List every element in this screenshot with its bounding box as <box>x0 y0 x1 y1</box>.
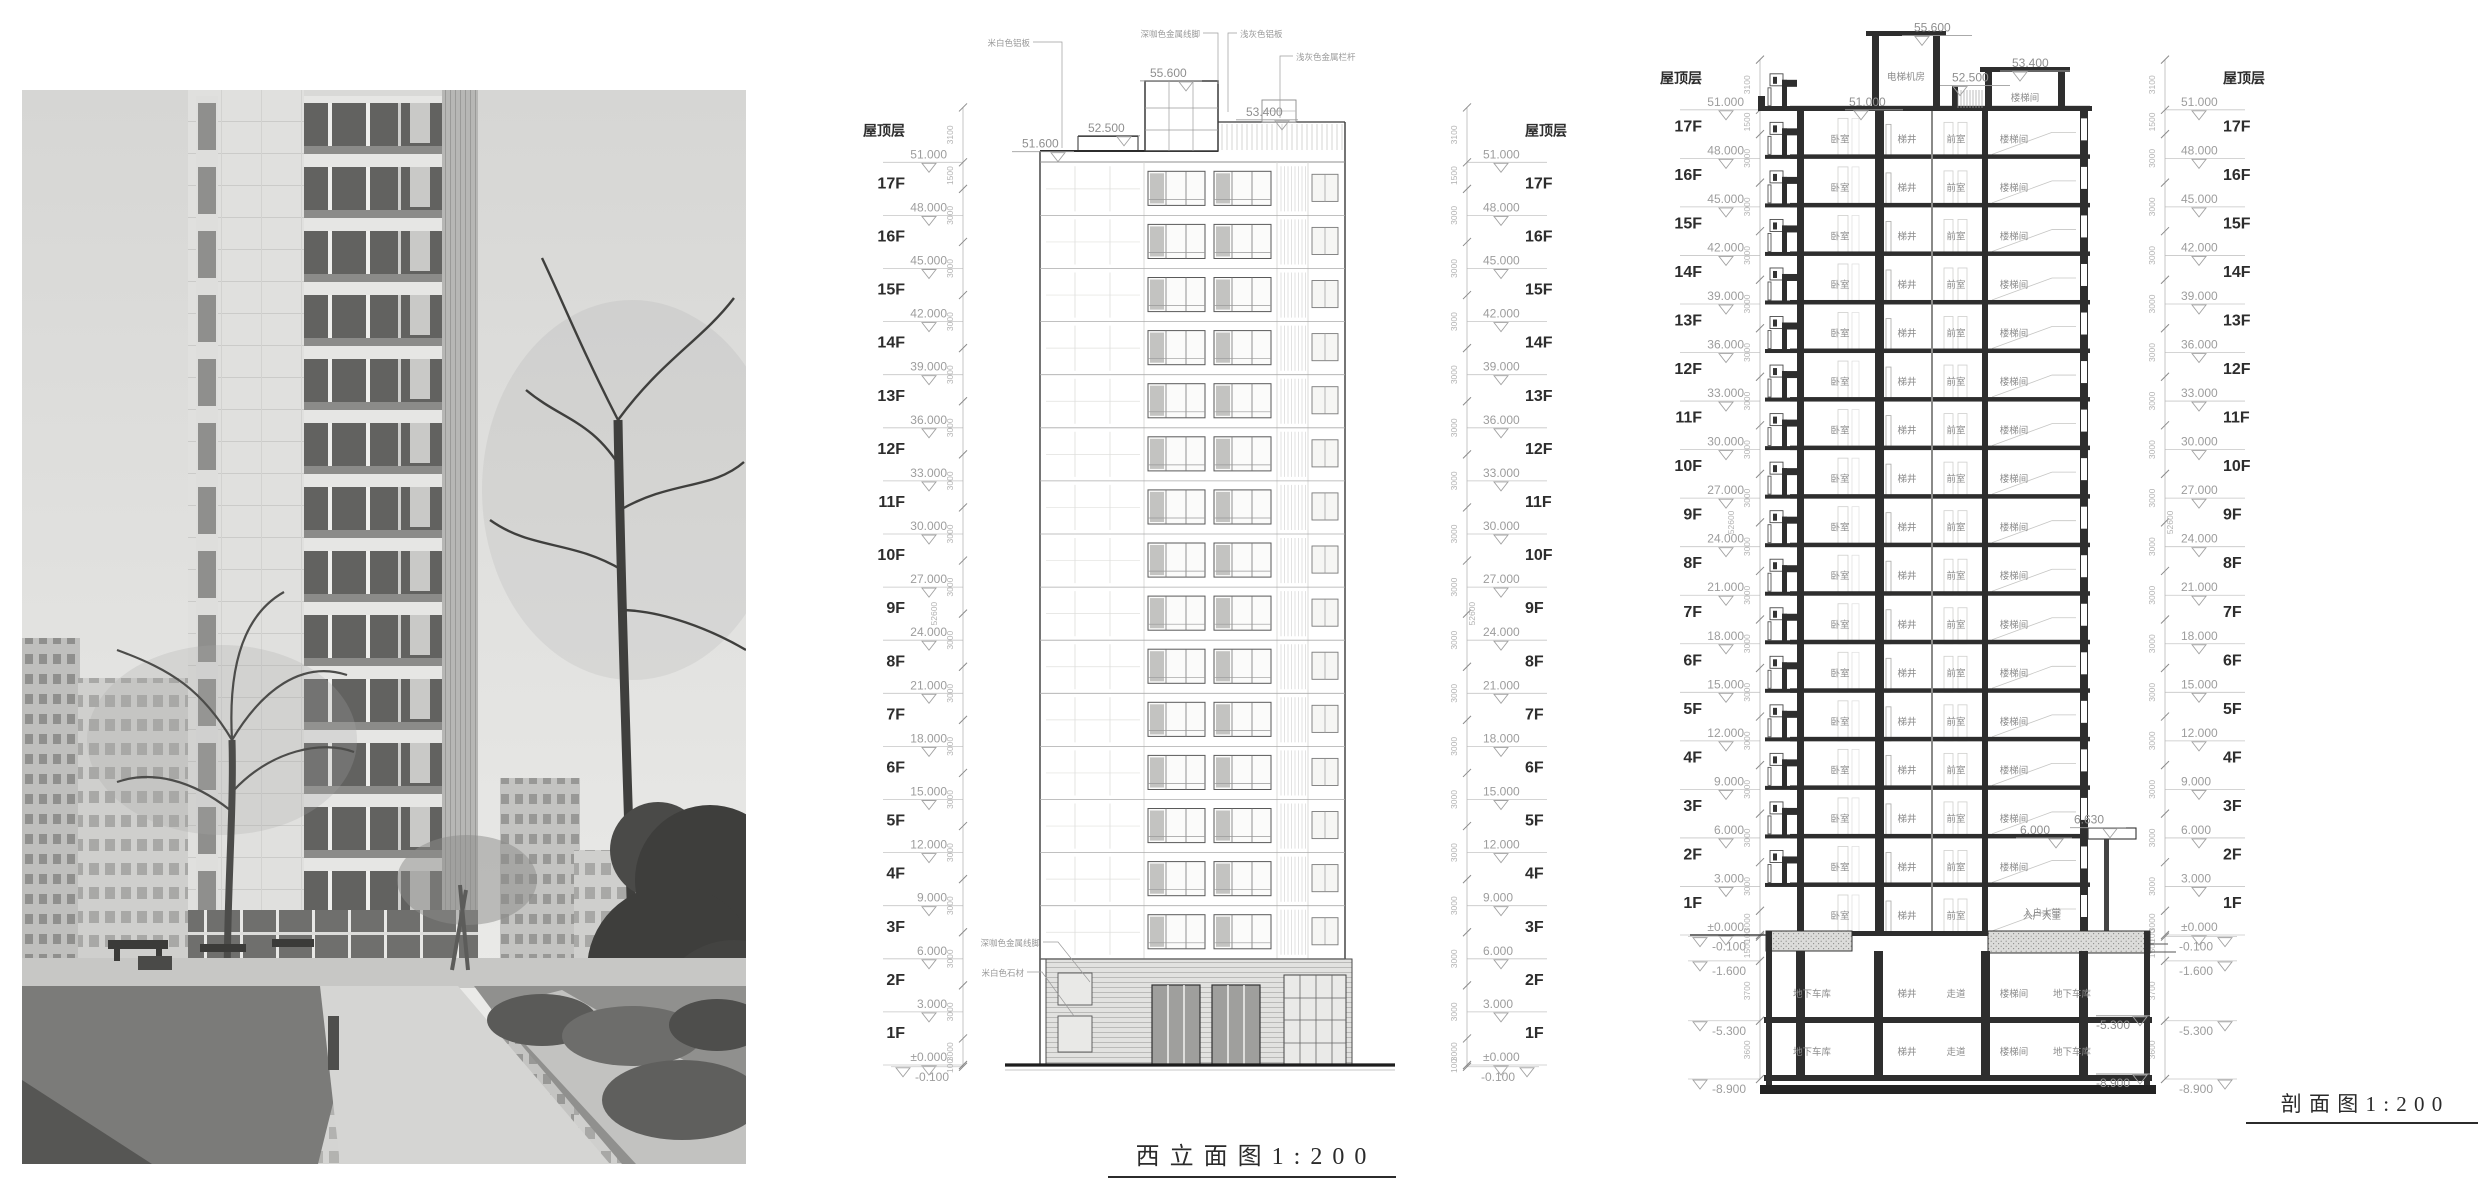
floor-name: 8F <box>1683 555 1702 572</box>
room-label: 梯井 <box>1897 328 1916 340</box>
floor-level: 30.000 <box>910 519 947 533</box>
dim-label: 3000 <box>945 206 955 225</box>
level-marker-icon <box>1494 323 1508 332</box>
floor-level: 33.000 <box>1483 466 1520 480</box>
dim-label: 3000 <box>1742 877 1752 896</box>
level-marker-icon <box>896 1068 910 1077</box>
elevation-building: 51.60052.50055.60053.400米白色铝板深咖色金属线脚浅灰色铝… <box>980 29 1395 1070</box>
room-label: 楼梯间 <box>2000 473 2029 485</box>
floor-level: 21.000 <box>1483 678 1520 692</box>
floor-name: 9F <box>886 600 905 617</box>
room-label: 楼梯间 <box>2000 182 2029 194</box>
floor-name: 12F <box>2223 361 2251 378</box>
level-marker-icon <box>2192 693 2206 702</box>
level-marker-icon <box>2192 499 2206 508</box>
below-level: -8.900 <box>2179 1082 2213 1096</box>
room-label: 梯井 <box>1897 425 1916 437</box>
dim-label: 3000 <box>1742 731 1752 750</box>
dim-label: 3000 <box>1742 828 1752 847</box>
level-marker-icon <box>2218 962 2232 971</box>
room-label: 卧室 <box>1830 861 1849 873</box>
dim-label: 3000 <box>2147 731 2157 750</box>
dim-label: 3000 <box>1449 577 1459 596</box>
level-marker-icon <box>1494 854 1508 863</box>
level-marker-icon <box>1494 747 1508 756</box>
dim-label: 100 <box>945 1059 955 1073</box>
below-level: -5.300 <box>2179 1024 2213 1038</box>
floor-name: 10F <box>1525 547 1553 564</box>
floor-name: 15F <box>2223 215 2251 232</box>
floor-level: 42.000 <box>1483 307 1520 321</box>
room-label: 地下车库 <box>1793 988 1832 1000</box>
room-label: 卧室 <box>1830 473 1849 485</box>
room-label: 卧室 <box>1830 813 1849 825</box>
floor-level: ±0.000 <box>910 1050 947 1064</box>
floor-level: 36.000 <box>1483 413 1520 427</box>
floor-name: 13F <box>1525 388 1553 405</box>
floor-name: 14F <box>877 335 905 352</box>
level-marker-icon <box>2192 354 2206 363</box>
level-marker-icon <box>1494 641 1508 650</box>
room-label: 梯井 <box>1897 230 1916 242</box>
dim-label: 3000 <box>1449 259 1459 278</box>
floor-name: 3F <box>1683 798 1702 815</box>
dim-label: 1500 <box>1449 166 1459 185</box>
level-marker-icon <box>1719 208 1733 217</box>
room-label: 前室 <box>1946 376 1965 388</box>
floor-name: 6F <box>2223 652 2242 669</box>
dim-label: 3000 <box>945 524 955 543</box>
level-marker-icon <box>2218 938 2232 947</box>
floor-level: 51.000 <box>2181 95 2218 109</box>
room-label: 卧室 <box>1830 279 1849 291</box>
floor-level: 3.000 <box>1714 871 1744 885</box>
level-marker-icon <box>1719 790 1733 799</box>
floor-level: 36.000 <box>2181 338 2218 352</box>
floor-name: 15F <box>877 282 905 299</box>
floor-name: 4F <box>1525 866 1544 883</box>
level-marker-icon <box>2049 839 2063 848</box>
level-marker-icon <box>2192 111 2206 120</box>
site-photo <box>22 90 746 1164</box>
room-label: 卧室 <box>1830 910 1849 922</box>
floor-level: 18.000 <box>910 731 947 745</box>
floor-name: 17F <box>1525 175 1553 192</box>
level-callout: 53.400 <box>2012 56 2049 70</box>
below-level: -5.300 <box>1712 1024 1746 1038</box>
floor-level: 3.000 <box>1483 997 1513 1011</box>
level-marker-icon <box>1719 354 1733 363</box>
floor-name: 17F <box>2223 118 2251 135</box>
dim-label: 3000 <box>1449 630 1459 649</box>
floor-level: 18.000 <box>2181 629 2218 643</box>
level-marker-icon <box>2192 596 2206 605</box>
floor-name: 7F <box>1683 604 1702 621</box>
floor-level: 30.000 <box>1707 435 1744 449</box>
dim-label: 3000 <box>1742 537 1752 556</box>
level-marker-icon <box>922 854 936 863</box>
room-label: 梯井 <box>1897 764 1916 776</box>
floor-name: 10F <box>2223 458 2251 475</box>
level-marker-icon <box>1719 402 1733 411</box>
floor-level: 48.000 <box>1707 143 1744 157</box>
room-label: 前室 <box>1946 182 1965 194</box>
floor-level: 21.000 <box>2181 580 2218 594</box>
dim-label: 3000 <box>2147 634 2157 653</box>
dim-label: 3000 <box>1742 391 1752 410</box>
floor-level: 27.000 <box>2181 483 2218 497</box>
floor-name: 10F <box>877 547 905 564</box>
level-marker-icon <box>2192 742 2206 751</box>
section-title: 剖 面 图 1 : 2 0 0 <box>2246 1088 2478 1124</box>
dim-label: 3100 <box>2147 75 2157 94</box>
floor-level: 27.000 <box>1707 483 1744 497</box>
dim-label: 3000 <box>945 577 955 596</box>
level-marker-icon <box>2192 790 2206 799</box>
floor-name: 14F <box>1525 335 1553 352</box>
floor-name: 7F <box>2223 604 2242 621</box>
level-marker-icon <box>2218 1080 2232 1089</box>
level-marker-icon <box>2192 159 2206 168</box>
room-label: 前室 <box>1946 813 1965 825</box>
floor-level: 39.000 <box>2181 289 2218 303</box>
level-marker-icon <box>922 801 936 810</box>
floor-name: 6F <box>886 760 905 777</box>
level-column-right: 51.000屋顶层48.00017F45.00016F42.00015F39.0… <box>1449 103 1567 1083</box>
floor-name: 12F <box>1525 441 1553 458</box>
floor-level: 12.000 <box>2181 726 2218 740</box>
room-label: 梯井 <box>1897 861 1916 873</box>
level-marker-icon <box>1719 596 1733 605</box>
level-callout: 55.600 <box>1150 66 1187 80</box>
level-marker-icon <box>1494 376 1508 385</box>
level-marker-icon <box>922 694 936 703</box>
floor-name: 12F <box>877 441 905 458</box>
dim-label: 3000 <box>945 630 955 649</box>
level-marker-icon <box>1693 962 1707 971</box>
level-marker-icon <box>1494 429 1508 438</box>
elevation-title: 西 立 面 图 1 : 2 0 0 <box>1108 1136 1396 1178</box>
floor-level: 15.000 <box>2181 677 2218 691</box>
floor-level: 45.000 <box>910 254 947 268</box>
floor-name: 5F <box>2223 701 2242 718</box>
dim-label: 3000 <box>2147 828 2157 847</box>
room-label: 楼梯间 <box>2000 764 2029 776</box>
room-label: 前室 <box>1946 473 1965 485</box>
room-label: 楼梯间 <box>2000 619 2029 631</box>
floor-level: 27.000 <box>1483 572 1520 586</box>
floor-level: ±0.000 <box>1707 920 1744 934</box>
level-callout: 51.000 <box>1849 95 1886 109</box>
room-label: 卧室 <box>1830 425 1849 437</box>
dim-label: 3000 <box>1742 585 1752 604</box>
floor-name: 11F <box>1675 410 1702 427</box>
floor-name: 2F <box>2223 846 2242 863</box>
room-label: 前室 <box>1946 861 1965 873</box>
floor-name: 9F <box>1525 600 1544 617</box>
floor-name: 8F <box>2223 555 2242 572</box>
floor-level: 45.000 <box>2181 192 2218 206</box>
floor-level: 51.000 <box>910 147 947 161</box>
dim-label: 3000 <box>2147 537 2157 556</box>
floor-name: 8F <box>886 653 905 670</box>
room-label: 楼梯间 <box>2000 716 2029 728</box>
dim-label: 3000 <box>1742 246 1752 265</box>
room-label: 卧室 <box>1830 570 1849 582</box>
dim-label: 3000 <box>1449 949 1459 968</box>
floor-name: 6F <box>1683 652 1702 669</box>
room-label: 前室 <box>1946 667 1965 679</box>
level-marker-icon <box>1494 960 1508 969</box>
dim-label: 3000 <box>2147 683 2157 702</box>
floor-level: 51.000 <box>1707 95 1744 109</box>
level-marker-icon <box>2192 887 2206 896</box>
floor-name: 3F <box>1525 919 1544 936</box>
dim-label: 3000 <box>945 949 955 968</box>
room-label: 楼梯间 <box>2000 328 2029 340</box>
floor-level: 6.000 <box>2181 823 2211 837</box>
floor-name: 16F <box>1674 167 1702 184</box>
overall-dim-label: 52600 <box>2165 510 2175 534</box>
floor-name: 屋顶层 <box>1525 122 1567 138</box>
level-marker-icon <box>922 588 936 597</box>
dim-label: 3000 <box>2147 488 2157 507</box>
room-label: 卧室 <box>1830 328 1849 340</box>
floor-name: 2F <box>886 972 905 989</box>
floor-level: 48.000 <box>1483 200 1520 214</box>
dim-label: 3000 <box>2147 246 2157 265</box>
floor-name: 8F <box>1525 653 1544 670</box>
dim-label: 3000 <box>1449 418 1459 437</box>
room-label: 楼梯间 <box>2000 1046 2029 1058</box>
level-marker-icon <box>922 216 936 225</box>
level-marker-icon <box>1494 270 1508 279</box>
floor-name: 9F <box>1683 507 1702 524</box>
section-building: 电梯机房楼梯间卧室梯井前室入户大堂卧室梯井前室楼梯间卧室梯井前室楼梯间卧室梯井前… <box>1690 20 2176 1094</box>
room-label: 前室 <box>1946 716 1965 728</box>
dim-label: 3000 <box>945 1002 955 1021</box>
room-label: 梯井 <box>1897 376 1916 388</box>
level-callout: 53.400 <box>1246 105 1283 119</box>
level-marker-icon <box>922 960 936 969</box>
room-label: 梯井 <box>1897 1046 1916 1058</box>
floor-name: 3F <box>886 919 905 936</box>
floor-level: 36.000 <box>1707 338 1744 352</box>
floor-name: 1F <box>1683 895 1702 912</box>
floor-level: 45.000 <box>1483 254 1520 268</box>
floor-level: 33.000 <box>910 466 947 480</box>
level-marker-icon <box>1051 153 1065 162</box>
room-label: 卧室 <box>1830 376 1849 388</box>
dim-label: 3000 <box>1449 1042 1459 1061</box>
dim-label: 3000 <box>1449 471 1459 490</box>
level-marker-icon <box>1719 887 1733 896</box>
floor-name: 5F <box>886 813 905 830</box>
floor-level: 24.000 <box>910 625 947 639</box>
room-label: 卧室 <box>1830 764 1849 776</box>
level-marker-icon <box>922 429 936 438</box>
floor-level: 33.000 <box>2181 386 2218 400</box>
floor-level: ±0.000 <box>1483 1050 1520 1064</box>
below-level: -1.600 <box>2179 964 2213 978</box>
overall-dim-label: 52600 <box>1467 602 1477 626</box>
floor-name: 14F <box>1674 264 1702 281</box>
material-note: 浅灰色铝板 <box>1240 29 1283 39</box>
dim-label: 3000 <box>1449 843 1459 862</box>
floor-name: 7F <box>886 706 905 723</box>
floor-name: 13F <box>2223 313 2251 330</box>
floor-level: 24.000 <box>1483 625 1520 639</box>
floor-name: 5F <box>1683 701 1702 718</box>
material-note: 米白色铝板 <box>987 38 1030 48</box>
room-label: 梯井 <box>1897 813 1916 825</box>
floor-level: 24.000 <box>2181 532 2218 546</box>
dim-label: 1500 <box>1742 112 1752 131</box>
level-marker-icon <box>1719 159 1733 168</box>
dim-label: 3000 <box>1742 488 1752 507</box>
dim-label: 3000 <box>2147 197 2157 216</box>
level-marker-icon <box>1719 305 1733 314</box>
level-marker-icon <box>1719 645 1733 654</box>
dim-label: 3000 <box>945 684 955 703</box>
overall-dim-label: 52600 <box>929 602 939 626</box>
level-marker-icon <box>1719 451 1733 460</box>
floor-level: 39.000 <box>910 360 947 374</box>
level-marker-icon <box>2192 305 2206 314</box>
floor-level: 30.000 <box>1483 519 1520 533</box>
level-callout: -5.300 <box>2096 1018 2130 1032</box>
room-label: 梯井 <box>1897 988 1916 1000</box>
level-callout: 51.600 <box>1022 137 1059 151</box>
floor-level: 9.000 <box>917 891 947 905</box>
level-callout: 52.500 <box>1952 71 1989 85</box>
room-label: 楼梯间 <box>2000 425 2029 437</box>
room-label: 楼梯间 <box>2000 667 2029 679</box>
dim-label: 3100 <box>1742 75 1752 94</box>
room-label: 前室 <box>1946 279 1965 291</box>
dim-label: 3000 <box>945 259 955 278</box>
room-label: 地下车库 <box>2053 1046 2092 1058</box>
floor-level: 3.000 <box>917 997 947 1011</box>
floor-name: 6F <box>1525 760 1544 777</box>
dim-label: 3600 <box>1742 1040 1752 1059</box>
floor-level: 42.000 <box>2181 240 2218 254</box>
room-label: 前室 <box>1946 425 1965 437</box>
room-label: 梯井 <box>1897 182 1916 194</box>
dim-label: 3000 <box>1449 790 1459 809</box>
floor-level: 15.000 <box>910 785 947 799</box>
dim-label: 3000 <box>945 418 955 437</box>
material-note: 深咖色金属线脚 <box>980 938 1040 948</box>
floor-level: 6.000 <box>917 944 947 958</box>
level-marker-icon <box>2192 839 2206 848</box>
room-label: 前室 <box>1946 328 1965 340</box>
floor-name: 17F <box>1674 118 1702 135</box>
room-label: 地下车库 <box>1793 1046 1832 1058</box>
floor-name: 12F <box>1674 361 1702 378</box>
floor-level: 30.000 <box>2181 435 2218 449</box>
floor-level: 12.000 <box>910 838 947 852</box>
floor-name: 1F <box>2223 895 2242 912</box>
level-marker-icon <box>2218 1022 2232 1031</box>
room-label: 卧室 <box>1830 522 1849 534</box>
level-marker-icon <box>1693 938 1707 947</box>
floor-level: 15.000 <box>1707 677 1744 691</box>
level-column-left: 51.000屋顶层48.00017F45.00016F42.00015F39.0… <box>863 103 967 1083</box>
floor-level: 39.000 <box>1707 289 1744 303</box>
floor-level: 39.000 <box>1483 360 1520 374</box>
dim-label: 3000 <box>1742 683 1752 702</box>
floor-name: 5F <box>1525 813 1544 830</box>
room-label: 楼梯间 <box>2000 570 2029 582</box>
room-label: 楼梯间 <box>2000 376 2029 388</box>
level-marker-icon <box>1719 742 1733 751</box>
level-marker-icon <box>1494 216 1508 225</box>
room-label: 入户大堂 <box>2023 907 2061 919</box>
room-label: 梯井 <box>1897 570 1916 582</box>
room-label: 走道 <box>1946 1046 1966 1058</box>
dim-label: 3000 <box>1449 737 1459 756</box>
floor-name: 11F <box>2223 410 2250 427</box>
dim-label: 3000 <box>2147 585 2157 604</box>
room-label: 前室 <box>1946 133 1965 145</box>
floor-level: 9.000 <box>1714 774 1744 788</box>
room-label: 楼梯间 <box>2000 861 2029 873</box>
level-marker-icon <box>922 163 936 172</box>
level-marker-icon <box>1494 694 1508 703</box>
floor-name: 17F <box>877 175 905 192</box>
level-marker-icon <box>1494 907 1508 916</box>
dim-label: 100 <box>1449 1059 1459 1073</box>
level-marker-icon <box>922 641 936 650</box>
level-marker-icon <box>1520 1068 1534 1077</box>
floor-level: 51.000 <box>1483 147 1520 161</box>
floor-level: 9.000 <box>2181 774 2211 788</box>
dim-label: 3000 <box>2147 780 2157 799</box>
floor-level: 6.000 <box>1483 944 1513 958</box>
room-label: 梯井 <box>1897 522 1916 534</box>
floor-name: 3F <box>2223 798 2242 815</box>
level-marker-icon <box>1693 1080 1707 1089</box>
floor-name: 1F <box>1525 1025 1544 1042</box>
level-marker-icon <box>1494 1013 1508 1022</box>
room-label: 前室 <box>1946 230 1965 242</box>
room-label: 地下车库 <box>2053 988 2092 1000</box>
floor-level: 21.000 <box>910 678 947 692</box>
architectural-drawing-sheet: 51.000屋顶层48.00017F45.00016F42.00015F39.0… <box>0 0 2486 1202</box>
dim-label: 3000 <box>1449 524 1459 543</box>
bollard <box>328 1016 339 1070</box>
floor-name: 16F <box>2223 167 2251 184</box>
dim-label: 3000 <box>1449 684 1459 703</box>
material-note: 浅灰色金属栏杆 <box>1296 52 1356 62</box>
dim-label: 3000 <box>2147 877 2157 896</box>
level-marker-icon <box>2192 548 2206 557</box>
dim-label: 3000 <box>945 471 955 490</box>
room-label: 前室 <box>1946 522 1965 534</box>
level-marker-icon <box>1494 588 1508 597</box>
level-marker-icon <box>922 323 936 332</box>
floor-name: 屋顶层 <box>2223 70 2265 86</box>
floor-level: 45.000 <box>1707 192 1744 206</box>
below-level: -8.900 <box>1712 1082 1746 1096</box>
level-marker-icon <box>922 482 936 491</box>
level-marker-icon <box>1494 482 1508 491</box>
dim-label: 3000 <box>1449 896 1459 915</box>
room-label: 前室 <box>1946 910 1965 922</box>
room-label: 走道 <box>1946 988 1966 1000</box>
level-marker-icon <box>922 747 936 756</box>
